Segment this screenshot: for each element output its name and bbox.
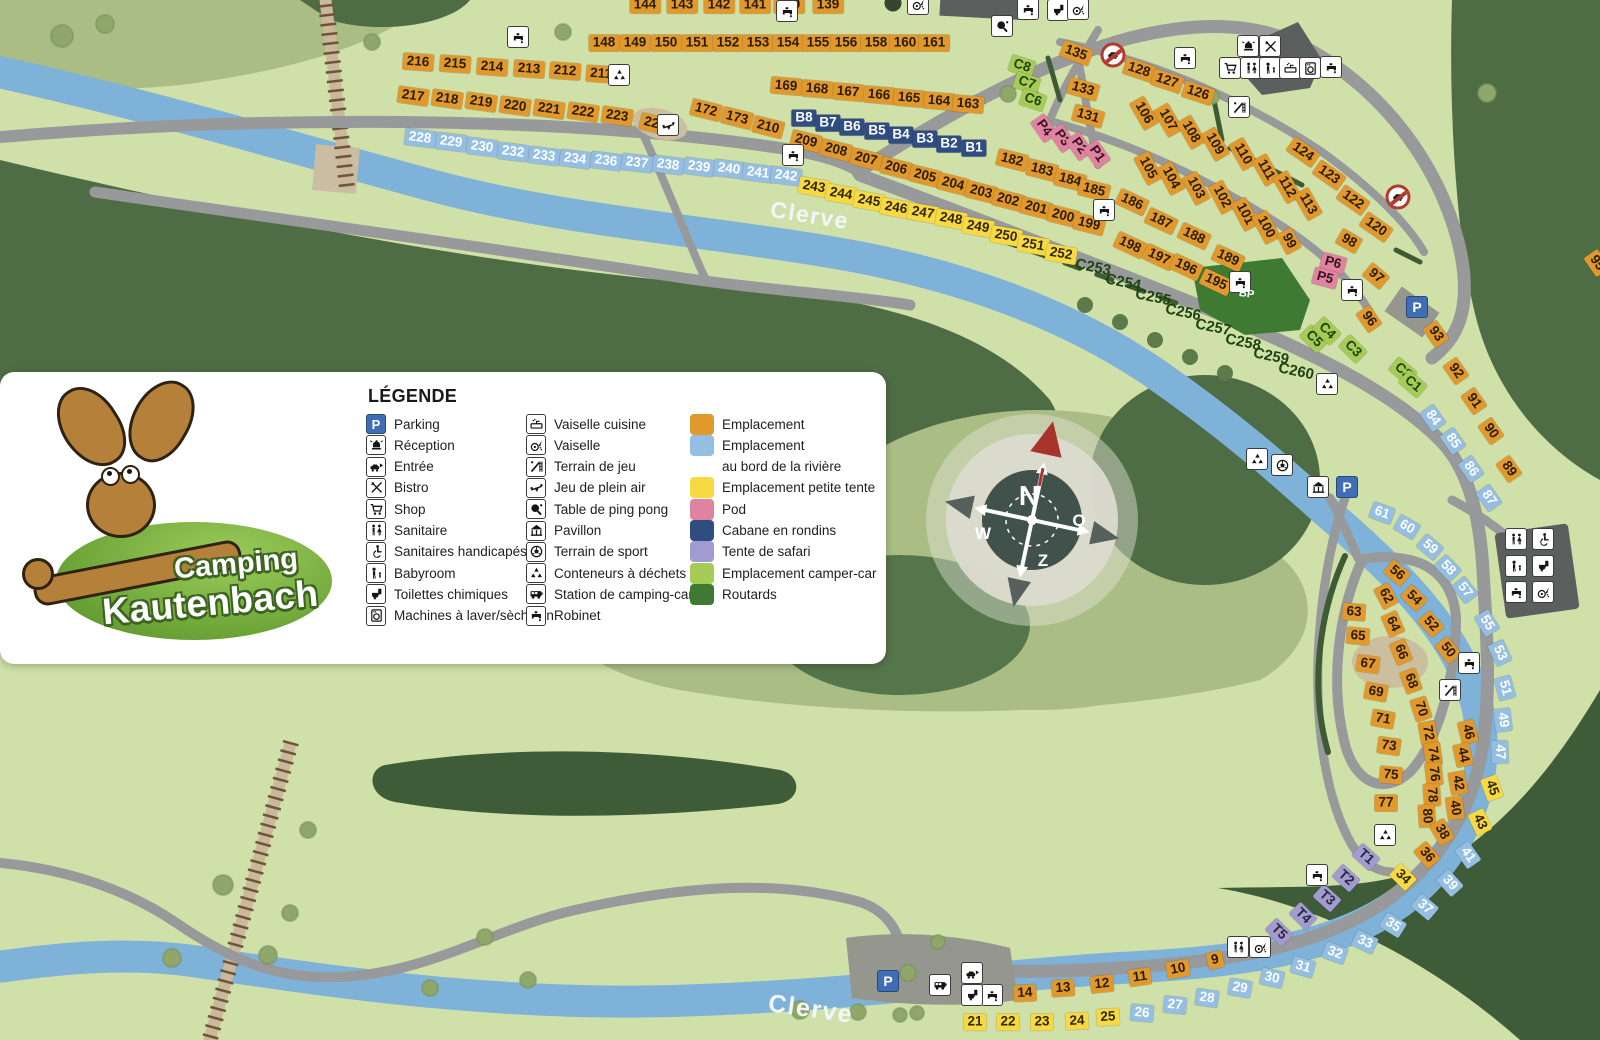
pitch-168: 168 <box>801 79 833 98</box>
pitch-23: 23 <box>1030 1014 1053 1031</box>
pitch-155: 155 <box>803 35 834 52</box>
pitch-216: 216 <box>402 53 434 72</box>
reception-icon <box>366 435 386 455</box>
sanitaire-icon <box>366 521 386 541</box>
nocar-icon <box>1101 43 1126 68</box>
pitch-B4: B4 <box>888 127 913 144</box>
pitch-12: 12 <box>1090 974 1115 993</box>
parking-icon: P <box>1336 476 1358 498</box>
color-swatch <box>690 541 714 562</box>
pitch-49: 49 <box>1493 708 1513 733</box>
legend-label: Sanitaire <box>394 523 447 538</box>
legend-label: Emplacement petite tente <box>722 480 875 495</box>
babyroom-icon <box>1259 57 1281 79</box>
legend-item-reception: Réception <box>366 435 455 455</box>
pitch-27: 27 <box>1163 995 1188 1014</box>
pitch-77: 77 <box>1374 795 1397 812</box>
pitch-232: 232 <box>497 142 529 162</box>
legend-area-emplacement: Emplacement <box>690 414 805 434</box>
pitch-154: 154 <box>773 35 804 52</box>
color-swatch <box>690 477 714 498</box>
hare-eye <box>101 467 120 486</box>
nocar-icon <box>1386 185 1411 210</box>
legend-area-emplacement: Emplacement <box>690 435 805 455</box>
campsite-map: 2162152142132122112172182192202212222232… <box>0 0 1600 1040</box>
legend-item-parking: PParking <box>366 414 440 434</box>
ping-pong-icon <box>991 15 1013 37</box>
terrain-jeu-icon <box>1228 96 1250 118</box>
hare-paw <box>22 558 54 590</box>
babyroom-icon <box>366 563 386 583</box>
robinet-icon <box>1017 0 1039 20</box>
dechets-icon <box>526 563 546 583</box>
pavillon-icon <box>1307 476 1329 498</box>
pitch-166: 166 <box>863 85 895 104</box>
pitch-233: 233 <box>528 146 560 166</box>
vaiselle-icon <box>907 0 929 15</box>
robinet-icon <box>507 26 529 48</box>
legend-label: Conteneurs à déchets <box>554 566 686 581</box>
sport-icon <box>526 542 546 562</box>
legend-label: Pavillon <box>554 523 601 538</box>
legend-title: LÉGENDE <box>368 386 457 407</box>
pitch-150: 150 <box>651 35 682 52</box>
robinet-icon <box>1320 56 1342 78</box>
legend-label: Shop <box>394 502 426 517</box>
dechets-icon <box>1246 448 1268 470</box>
toilettes-icon <box>1532 555 1554 577</box>
robinet-icon <box>1093 199 1115 221</box>
terrain-jeu-icon <box>1439 679 1461 701</box>
toilettes-icon <box>961 984 983 1006</box>
pitch-141: 141 <box>740 0 771 13</box>
pitch-229: 229 <box>435 132 467 152</box>
vaiselle-cuisine-icon <box>1279 57 1301 79</box>
legend-item-vaiselle: Vaiselle <box>526 435 600 455</box>
pitch-B7: B7 <box>815 115 840 132</box>
sanitaire-icon <box>1505 528 1527 550</box>
plein-air-icon <box>657 114 679 136</box>
pitch-47: 47 <box>1491 740 1509 764</box>
legend-item-ping-pong: Table de ping pong <box>526 499 668 519</box>
pitch-144: 144 <box>630 0 661 13</box>
pitch-239: 239 <box>683 157 715 177</box>
legend-label: Toilettes chimiques <box>394 587 508 602</box>
pitch-B8: B8 <box>791 110 816 127</box>
toilettes-icon <box>366 584 386 604</box>
pitch-236: 236 <box>590 151 622 171</box>
pitch-139: 139 <box>813 0 844 13</box>
legend-label: Sanitaires handicapés <box>394 544 527 559</box>
legend-label: Emplacement <box>722 438 805 453</box>
vaiselle-icon <box>1067 0 1089 20</box>
parking-icon: P <box>366 414 386 434</box>
robinet-icon <box>1306 864 1328 886</box>
handicap-icon <box>1532 528 1554 550</box>
compass-e: O <box>1072 511 1085 530</box>
pitch-28: 28 <box>1194 988 1219 1008</box>
robinet-icon <box>782 144 804 166</box>
legend-item-handicap: Sanitaires handicapés <box>366 542 527 562</box>
hare-ear-left <box>44 375 139 479</box>
legend-label: Emplacement <box>722 417 805 432</box>
pitch-213: 213 <box>513 60 545 79</box>
toilettes-icon <box>1047 0 1069 21</box>
pitch-228: 228 <box>404 128 436 148</box>
pitch-149: 149 <box>620 35 651 52</box>
legend-label: Parking <box>394 417 440 432</box>
hare-ear-right <box>114 369 207 472</box>
legend-label: Vaiselle cuisine <box>554 417 646 432</box>
legend-label: Pod <box>722 502 746 517</box>
robinet-icon <box>1458 652 1480 674</box>
pitch-215: 215 <box>439 55 471 74</box>
pitch-63: 63 <box>1342 603 1366 621</box>
legend-item-sanitaire: Sanitaire <box>366 521 447 541</box>
pitch-242: 242 <box>770 166 802 186</box>
legend-item-bistro: Bistro <box>366 478 429 498</box>
robinet-icon <box>981 984 1003 1006</box>
pitch-73: 73 <box>1376 736 1401 756</box>
station-icon <box>929 974 951 996</box>
legend-label: Cabane en rondins <box>722 523 836 538</box>
legend-item-sport: Terrain de sport <box>526 542 648 562</box>
plein-air-icon <box>526 478 546 498</box>
legend-area-pod: Pod <box>690 499 746 519</box>
legend-label: au bord de la rivière <box>722 459 841 474</box>
legend-label: Robinet <box>554 608 601 623</box>
legend-label: Entrée <box>394 459 434 474</box>
dechets-icon <box>1374 824 1396 846</box>
parking-icon: P <box>877 970 899 992</box>
legend-item-entree: Entrée <box>366 457 434 477</box>
bistro-icon <box>366 478 386 498</box>
color-swatch <box>690 414 714 435</box>
pitch-13: 13 <box>1051 979 1075 997</box>
pitch-152: 152 <box>713 35 744 52</box>
legend-label: Terrain de sport <box>554 544 648 559</box>
legend-label: Tente de safari <box>722 544 811 559</box>
pitch-40: 40 <box>1445 795 1465 820</box>
legend-area-emplacement-camper-car: Emplacement camper-car <box>690 563 877 583</box>
pitch-167: 167 <box>832 82 864 101</box>
shop-icon <box>366 499 386 519</box>
shop-icon <box>1219 57 1241 79</box>
legend-label: Jeu de plein air <box>554 480 646 495</box>
color-swatch <box>690 584 714 605</box>
vaiselle-icon <box>1249 936 1271 958</box>
pitch-22: 22 <box>996 1014 1019 1031</box>
legend-item-terrain-jeu: Terrain de jeu <box>526 457 636 477</box>
bistro-icon <box>1259 35 1281 57</box>
pitch-212: 212 <box>549 62 581 81</box>
pitch-24: 24 <box>1065 1012 1089 1030</box>
robinet-icon <box>776 0 798 22</box>
pitch-234: 234 <box>559 149 591 169</box>
legend-label: Terrain de jeu <box>554 459 636 474</box>
legend-item-pavillon: Pavillon <box>526 521 601 541</box>
pitch-26: 26 <box>1130 1004 1154 1023</box>
bp-zone-label: BP <box>1238 287 1255 301</box>
pitch-164: 164 <box>923 91 955 110</box>
color-swatch <box>690 499 714 520</box>
sanitaire-icon <box>1227 936 1249 958</box>
legend-label: Emplacement camper-car <box>722 566 877 581</box>
entree-icon <box>366 457 386 477</box>
ping-pong-icon <box>526 499 546 519</box>
vaiselle-cuisine-icon <box>526 414 546 434</box>
pitch-25: 25 <box>1096 1008 1120 1026</box>
dechets-icon <box>1316 373 1338 395</box>
legend-item-plein-air: Jeu de plein air <box>526 478 646 498</box>
hare-head <box>86 472 156 538</box>
babyroom-icon <box>1505 555 1527 577</box>
pitch-B6: B6 <box>839 119 864 136</box>
pitch-214: 214 <box>476 58 508 77</box>
legend-item-toilettes: Toilettes chimiques <box>366 584 508 604</box>
legend-label: Station de camping-car <box>554 587 693 602</box>
machines-icon <box>366 606 386 626</box>
hare-eye <box>121 465 140 484</box>
legend-item-vaiselle-cuisine: Vaiselle cuisine <box>526 414 646 434</box>
pitch-163: 163 <box>952 94 984 113</box>
parking-icon: P <box>1406 296 1428 318</box>
pitch-75: 75 <box>1379 766 1403 785</box>
pitch-21: 21 <box>963 1014 986 1031</box>
robinet-icon <box>526 606 546 626</box>
compass-w: W <box>975 524 992 543</box>
legend-area-cabane-en-rondins: Cabane en rondins <box>690 521 836 541</box>
pitch-B3: B3 <box>912 131 937 148</box>
sport-icon <box>1271 454 1293 476</box>
legend-item-station: Station de camping-car <box>526 584 693 604</box>
color-swatch <box>690 520 714 541</box>
legend-item-babyroom: Babyroom <box>366 563 456 583</box>
robinet-icon <box>1505 581 1527 603</box>
legend-area-sublabel: au bord de la rivière <box>722 457 841 477</box>
compass-n: N <box>1019 480 1039 511</box>
legend-area-emplacement-petite-tente: Emplacement petite tente <box>690 478 875 498</box>
pavillon-icon <box>526 521 546 541</box>
pitch-156: 156 <box>831 35 862 52</box>
pitch-153: 153 <box>743 35 774 52</box>
pitch-161: 161 <box>919 35 950 52</box>
pitch-237: 237 <box>621 153 653 173</box>
pitch-11: 11 <box>1128 967 1152 987</box>
pitch-160: 160 <box>890 35 921 52</box>
pitch-148: 148 <box>589 35 620 52</box>
pitch-143: 143 <box>667 0 698 13</box>
pitch-B2: B2 <box>936 136 961 153</box>
entree-icon <box>961 962 983 984</box>
pitch-151: 151 <box>682 35 713 52</box>
legend-item-dechets: Conteneurs à déchets <box>526 563 686 583</box>
terrain-jeu-icon <box>526 457 546 477</box>
pitch-142: 142 <box>704 0 735 13</box>
compass-s: Z <box>1038 551 1048 570</box>
dechets-icon <box>608 64 630 86</box>
pitch-240: 240 <box>713 159 745 179</box>
legend-label: Babyroom <box>394 566 456 581</box>
pitch-238: 238 <box>652 155 684 175</box>
legend-area-tente-de-safari: Tente de safari <box>690 542 811 562</box>
legend-label: Bistro <box>394 480 429 495</box>
pitch-65: 65 <box>1346 627 1370 646</box>
pitch-165: 165 <box>893 88 925 107</box>
vaiselle-icon <box>526 435 546 455</box>
robinet-icon <box>1341 279 1363 301</box>
legend-label: Table de ping pong <box>554 502 668 517</box>
legend-item-shop: Shop <box>366 499 426 519</box>
reception-icon <box>1237 35 1259 57</box>
legend-label: Vaiselle <box>554 438 600 453</box>
pitch-B5: B5 <box>864 123 889 140</box>
station-icon <box>526 584 546 604</box>
handicap-icon <box>366 542 386 562</box>
color-swatch <box>690 435 714 456</box>
pitch-158: 158 <box>861 35 892 52</box>
legend-area-routards: Routards <box>690 584 777 604</box>
legend-label: Réception <box>394 438 455 453</box>
color-swatch <box>690 563 714 584</box>
camping-kautenbach-logo: Camping Kautenbach <box>14 380 344 650</box>
machines-icon <box>1299 57 1321 79</box>
vaiselle-icon <box>1532 581 1554 603</box>
pitch-230: 230 <box>466 137 498 157</box>
legend-label: Routards <box>722 587 777 602</box>
legend-item-robinet: Robinet <box>526 606 601 626</box>
pitch-9: 9 <box>1206 950 1225 970</box>
pitch-B1: B1 <box>961 140 986 157</box>
pitch-14: 14 <box>1013 984 1037 1002</box>
robinet-icon <box>1174 47 1196 69</box>
pitch-169: 169 <box>770 76 802 95</box>
compass-rose: N O W Z <box>917 405 1147 635</box>
pitch-67: 67 <box>1355 654 1380 674</box>
